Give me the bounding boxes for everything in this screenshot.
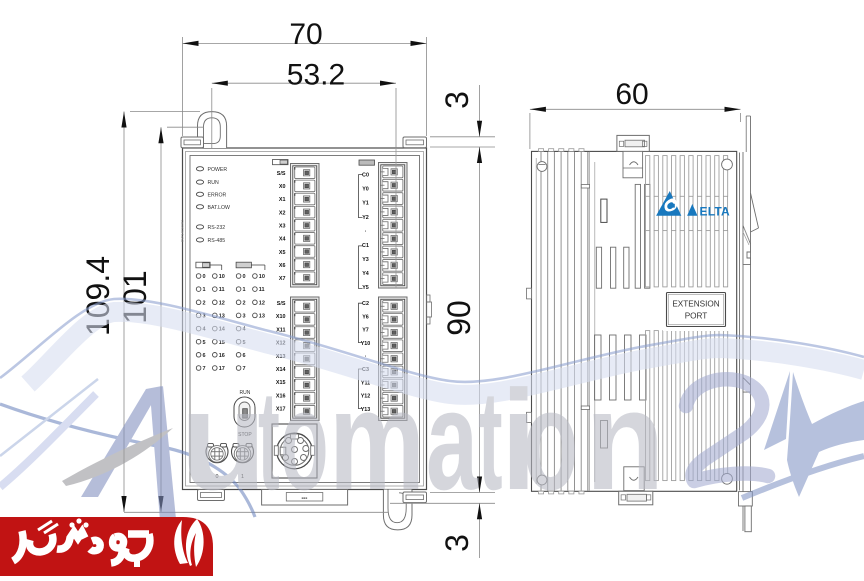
- svg-text:Y6: Y6: [362, 314, 369, 320]
- svg-text:u: u: [180, 361, 267, 520]
- svg-text:X3: X3: [279, 223, 286, 229]
- svg-text:Y0: Y0: [362, 187, 369, 193]
- svg-text:1: 1: [203, 287, 206, 293]
- svg-text:o: o: [280, 362, 329, 520]
- svg-text:11: 11: [219, 287, 225, 293]
- svg-text:S/S: S/S: [277, 171, 286, 177]
- svg-text:t: t: [478, 361, 503, 519]
- svg-text:X2: X2: [279, 210, 286, 216]
- svg-text:Y2: Y2: [362, 215, 369, 221]
- svg-text:RUN: RUN: [208, 180, 219, 186]
- svg-text:·: ·: [365, 229, 367, 235]
- svg-text:11: 11: [259, 287, 265, 293]
- svg-text:EXTENSION: EXTENSION: [672, 300, 719, 309]
- svg-text:Y4: Y4: [362, 271, 369, 277]
- svg-text:10: 10: [259, 274, 265, 280]
- svg-text:X10: X10: [276, 314, 286, 320]
- svg-text:6: 6: [243, 353, 246, 359]
- svg-text:12: 12: [219, 300, 225, 306]
- svg-text:ELTA: ELTA: [700, 205, 730, 219]
- svg-text:C0: C0: [362, 173, 369, 179]
- svg-text:60: 60: [615, 78, 648, 111]
- svg-text:0: 0: [203, 274, 206, 280]
- svg-text:a: a: [426, 362, 479, 520]
- svg-text:3: 3: [439, 91, 475, 109]
- svg-text:3: 3: [439, 534, 475, 552]
- svg-text:70: 70: [289, 18, 322, 51]
- svg-text:m: m: [329, 361, 425, 520]
- svg-text:X6: X6: [279, 263, 286, 269]
- svg-text:t: t: [258, 362, 280, 520]
- svg-text:X0: X0: [279, 184, 286, 190]
- svg-text:6: 6: [203, 353, 206, 359]
- svg-text:X4: X4: [279, 237, 286, 243]
- svg-text:3: 3: [243, 314, 246, 320]
- svg-text:X1: X1: [279, 197, 286, 203]
- svg-text:1: 1: [243, 287, 246, 293]
- svg-text:C2: C2: [362, 301, 369, 307]
- svg-text:2: 2: [203, 300, 206, 306]
- svg-text:Y5: Y5: [362, 285, 369, 291]
- svg-text:13: 13: [259, 314, 265, 320]
- svg-text:12: 12: [259, 300, 265, 306]
- svg-text:2: 2: [243, 300, 246, 306]
- svg-text:n: n: [585, 360, 665, 519]
- svg-text:X7: X7: [279, 276, 286, 282]
- svg-text:S/S: S/S: [277, 301, 286, 307]
- svg-text:5: 5: [203, 340, 206, 346]
- svg-text:Y10: Y10: [361, 341, 371, 347]
- svg-text:DVP14ES00R2: DVP14ES00R2: [181, 220, 185, 242]
- svg-text:Y7: Y7: [362, 328, 369, 334]
- svg-text:X5: X5: [279, 250, 286, 256]
- svg-text:53.2: 53.2: [287, 59, 345, 92]
- svg-text:RS-232: RS-232: [208, 225, 226, 231]
- svg-text:o: o: [523, 362, 579, 520]
- svg-text:PORT: PORT: [685, 312, 708, 321]
- svg-text:BAT.LOW: BAT.LOW: [208, 205, 230, 211]
- svg-text:90: 90: [441, 300, 477, 336]
- svg-text:RS-485: RS-485: [208, 238, 226, 244]
- svg-text:POWER: POWER: [208, 167, 228, 173]
- svg-text:16: 16: [219, 353, 225, 359]
- svg-text:Y3: Y3: [362, 257, 369, 263]
- svg-text:10: 10: [219, 274, 225, 280]
- svg-text:Y1: Y1: [362, 201, 369, 207]
- svg-text:C1: C1: [362, 243, 369, 249]
- svg-text:ERROR: ERROR: [208, 192, 227, 198]
- svg-text:0: 0: [243, 274, 246, 280]
